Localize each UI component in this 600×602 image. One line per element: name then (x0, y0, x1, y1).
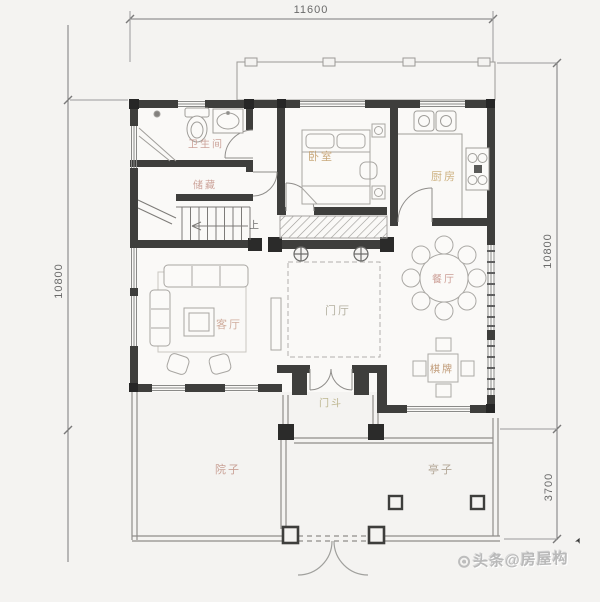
floorplan-drawing (0, 0, 600, 602)
room-label-courtyard: 院子 (215, 461, 241, 477)
room-label-bedroom: 卧室 (308, 148, 334, 164)
room-label-pavilion: 亭子 (428, 461, 454, 477)
room-label-vestibule: 门斗 (319, 395, 343, 410)
stairs-up-label: 上 (249, 217, 259, 232)
dimension-right-upper: 10800 (542, 233, 554, 269)
dimension-top: 11600 (294, 4, 329, 16)
watermark-logo-icon (458, 555, 470, 567)
room-label-dining-room: 餐厅 (432, 271, 456, 286)
stove (466, 148, 489, 190)
watermark-text: 头条@房屋构 (473, 547, 569, 571)
pavilion-columns (389, 496, 484, 509)
watermark: 头条@房屋构 (458, 547, 569, 572)
dimension-left: 10800 (53, 263, 65, 299)
bathroom-sink (213, 109, 243, 133)
room-label-storage: 储藏 (193, 177, 217, 192)
room-label-kitchen: 厨房 (431, 168, 457, 184)
room-label-game-room: 棋牌 (430, 361, 454, 376)
floor-plan-canvas: 卫生间 储藏 卧室 厨房 客厅 门厅 餐厅 棋牌 门斗 院子 亭子 上 1160… (0, 0, 600, 602)
room-label-living-room: 客厅 (216, 316, 242, 332)
room-label-bathroom: 卫生间 (188, 136, 224, 151)
dimension-right-lower: 3700 (543, 473, 555, 501)
canopy-hatch (280, 216, 387, 238)
fences-and-gate (132, 392, 500, 575)
room-label-foyer: 门厅 (325, 302, 351, 318)
